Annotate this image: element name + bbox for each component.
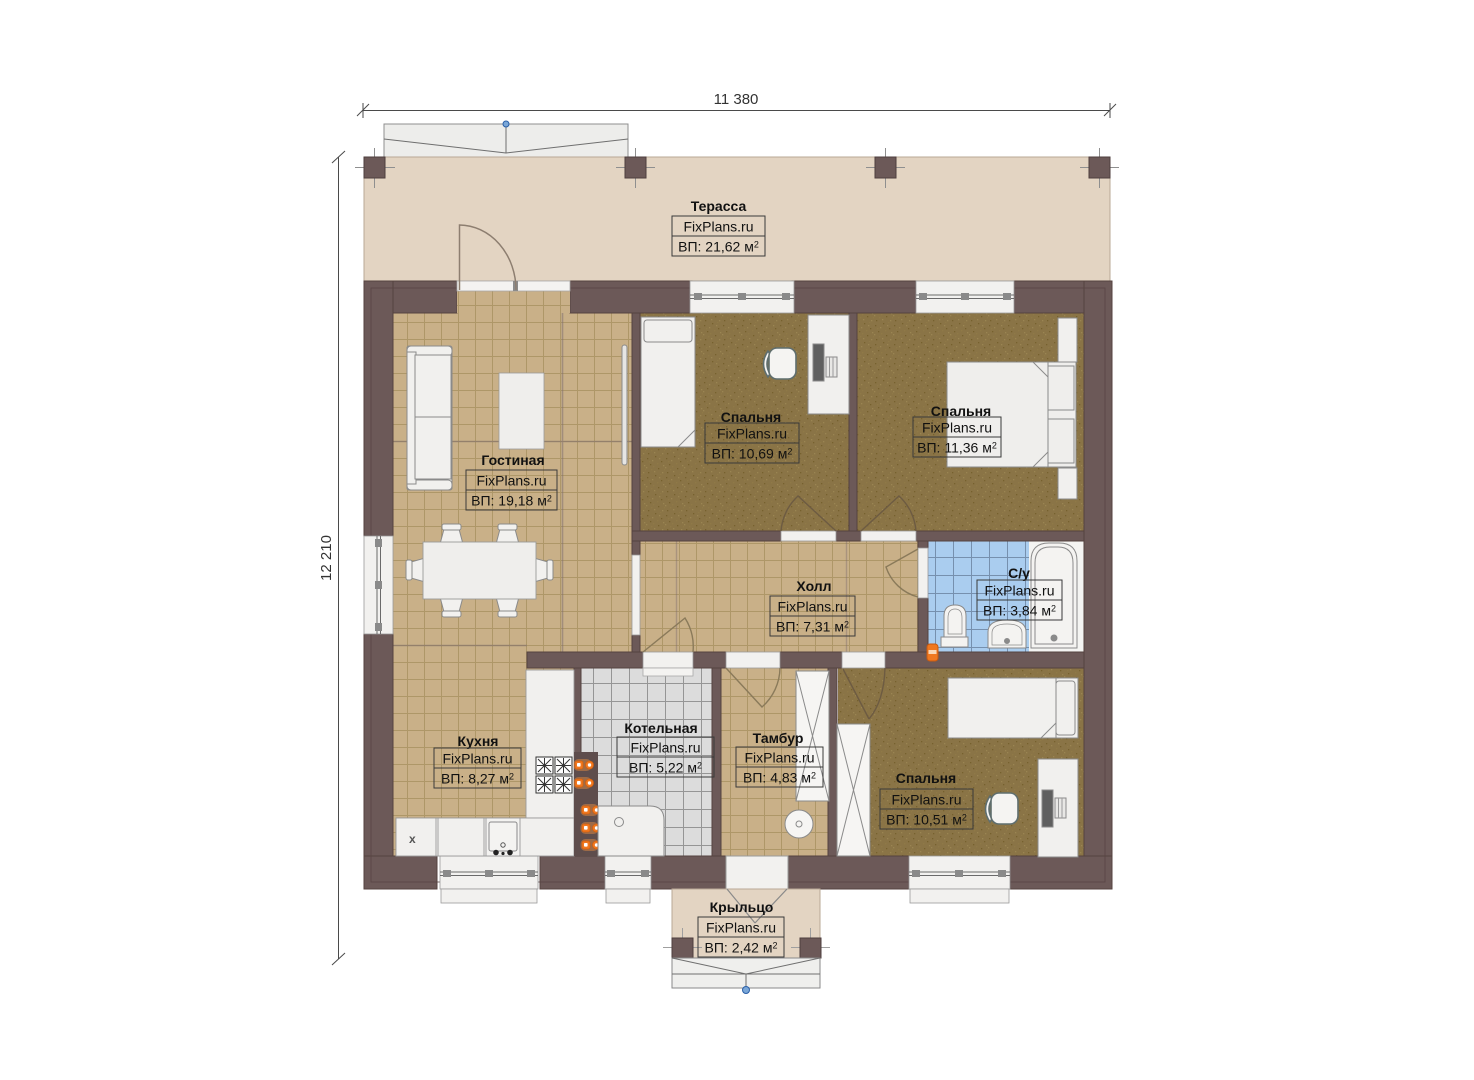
svg-text:ВП: 11,36 м2: ВП: 11,36 м2 bbox=[917, 440, 997, 456]
svg-text:11 380: 11 380 bbox=[714, 91, 759, 108]
svg-text:FixPlans.ru: FixPlans.ru bbox=[630, 740, 700, 756]
svg-text:FixPlans.ru: FixPlans.ru bbox=[706, 920, 776, 936]
svg-text:Кухня: Кухня bbox=[458, 733, 499, 749]
svg-text:ВП: 21,62 м2: ВП: 21,62 м2 bbox=[678, 239, 759, 255]
svg-text:Котельная: Котельная bbox=[624, 720, 697, 736]
svg-text:ВП: 2,42 м2: ВП: 2,42 м2 bbox=[705, 940, 778, 956]
svg-text:Крыльцо: Крыльцо bbox=[710, 899, 774, 915]
svg-text:FixPlans.ru: FixPlans.ru bbox=[984, 583, 1054, 599]
svg-text:Гостиная: Гостиная bbox=[481, 452, 544, 468]
svg-text:FixPlans.ru: FixPlans.ru bbox=[717, 426, 787, 442]
svg-text:FixPlans.ru: FixPlans.ru bbox=[777, 599, 847, 615]
svg-text:x: x bbox=[409, 832, 416, 846]
svg-text:ВП: 10,69 м2: ВП: 10,69 м2 bbox=[712, 446, 793, 462]
svg-text:С/у: С/у bbox=[1008, 565, 1030, 581]
svg-text:FixPlans.ru: FixPlans.ru bbox=[891, 792, 961, 808]
svg-text:Спальня: Спальня bbox=[896, 770, 956, 786]
svg-text:FixPlans.ru: FixPlans.ru bbox=[476, 473, 546, 489]
svg-text:ВП: 8,27 м2: ВП: 8,27 м2 bbox=[441, 771, 514, 787]
svg-text:12 210: 12 210 bbox=[318, 535, 335, 581]
svg-text:ВП: 7,31 м2: ВП: 7,31 м2 bbox=[776, 619, 849, 635]
svg-text:FixPlans.ru: FixPlans.ru bbox=[922, 420, 992, 436]
svg-text:ВП: 5,22 м2: ВП: 5,22 м2 bbox=[629, 760, 702, 776]
svg-text:Терасса: Терасса bbox=[691, 198, 747, 214]
svg-text:ВП: 3,84 м2: ВП: 3,84 м2 bbox=[983, 603, 1056, 619]
svg-text:ВП: 10,51 м2: ВП: 10,51 м2 bbox=[886, 812, 967, 828]
svg-text:ВП: 4,83 м2: ВП: 4,83 м2 bbox=[743, 770, 816, 786]
svg-text:Холл: Холл bbox=[796, 578, 831, 594]
svg-text:FixPlans.ru: FixPlans.ru bbox=[744, 750, 814, 766]
svg-text:ВП: 19,18 м2: ВП: 19,18 м2 bbox=[471, 493, 552, 509]
svg-text:FixPlans.ru: FixPlans.ru bbox=[683, 219, 753, 235]
svg-text:Тамбур: Тамбур bbox=[753, 730, 804, 746]
svg-text:FixPlans.ru: FixPlans.ru bbox=[442, 751, 512, 767]
